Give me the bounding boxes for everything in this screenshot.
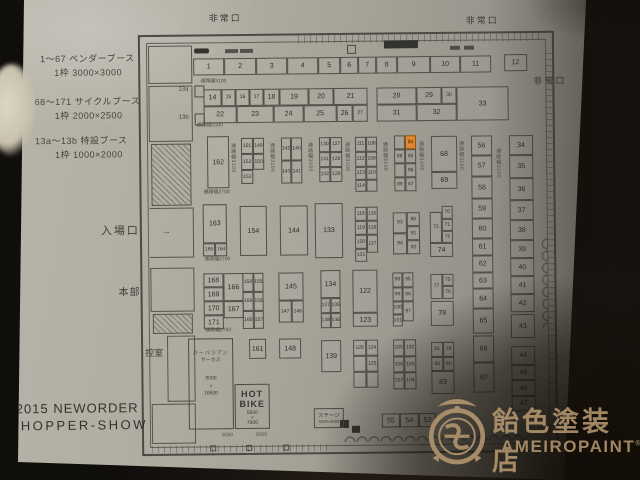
booth-129: 129	[330, 167, 342, 182]
top-wall-mark	[450, 46, 460, 50]
booth-107: 107	[393, 372, 404, 389]
booth-8: 8	[376, 56, 397, 73]
booth-116: 116	[367, 221, 378, 235]
booth-73: 73	[430, 212, 442, 243]
floor-plan: 非常口 非常口 非常口 1〜67 ベンダーブース 1枠 3000×3000 68…	[0, 0, 640, 480]
booth-160: 160	[243, 311, 254, 329]
top-wall-mark	[240, 49, 253, 53]
hot-bike-line1: HOT	[236, 389, 269, 400]
booth-112: 112	[355, 152, 366, 167]
booth-46: 46	[511, 380, 535, 396]
booth-31: 31	[377, 104, 417, 121]
entrance-label: 入場口	[101, 222, 140, 238]
booth-120: 120	[355, 235, 367, 249]
booth-35: 35	[509, 155, 533, 178]
special-booth-13a-label: 13a	[178, 87, 188, 93]
booth-134: 134	[320, 270, 340, 298]
booth-144: 144	[280, 205, 309, 255]
booth-152: 152	[241, 154, 253, 170]
booth-38: 38	[510, 220, 534, 240]
booth-124: 124	[366, 340, 378, 356]
booth-82: 82	[431, 357, 443, 371]
circus-size2: 16500	[190, 390, 233, 398]
aisle-width-label: 通路幅3100	[269, 143, 274, 173]
booth-105: 105	[393, 339, 404, 356]
booth-75: 75	[442, 274, 453, 286]
booth-30: 30	[441, 87, 456, 104]
booth-45: 45	[511, 365, 535, 380]
booth-168: 168	[203, 273, 223, 287]
booth-7: 7	[358, 57, 376, 74]
booth-22: 22	[204, 106, 237, 123]
booth-41: 41	[510, 276, 534, 294]
booth-12: 12	[504, 54, 527, 71]
booth-70: 70	[442, 206, 453, 219]
booth-162: 162	[207, 136, 230, 188]
booth-115: 115	[367, 207, 378, 221]
exit-label-top-right: 非常口	[466, 13, 499, 26]
booth-135: 135	[331, 298, 341, 313]
booth-17: 17	[249, 89, 263, 106]
legend-line-5: 13a〜13b 特設ブース	[35, 133, 128, 147]
booth-122: 122	[352, 270, 377, 313]
aisle-width-label: 通路幅3100	[197, 123, 223, 128]
booth-5: 5	[318, 57, 340, 74]
booth-88: 88	[394, 149, 405, 163]
booth-24: 24	[274, 105, 304, 122]
booth-3: 3	[256, 58, 287, 75]
booth-156: 156	[254, 292, 264, 311]
booth-87: 87	[405, 177, 416, 191]
booth-16: 16	[235, 89, 249, 106]
booth-90: 90	[407, 212, 420, 226]
booth-83: 83	[431, 371, 454, 394]
booth-9: 9	[397, 56, 430, 73]
booth-64: 64	[473, 288, 494, 308]
booth-169: 169	[203, 287, 223, 301]
booth-59: 59	[472, 198, 493, 218]
booth-137: 137	[321, 298, 331, 313]
booth-117: 117	[367, 235, 378, 253]
top-wall-mark	[464, 46, 474, 50]
booth-106: 106	[393, 356, 404, 372]
booth-39: 39	[510, 240, 534, 258]
booth-33: 33	[456, 86, 508, 121]
entrance-arrow: →	[162, 226, 171, 236]
booth-empty	[366, 180, 377, 192]
booth-119: 119	[355, 221, 367, 235]
booth-98: 98	[392, 272, 402, 287]
booth-57: 57	[471, 155, 492, 176]
aisle-width-label: 通路幅3100	[458, 141, 463, 171]
booth-54: 54	[400, 413, 419, 427]
paper-sheet: 非常口 非常口 非常口 1〜67 ベンダーブース 1枠 3000×3000 68…	[0, 0, 640, 480]
booth-85: 85	[405, 149, 416, 163]
aisle-width-label: 通路幅2700	[204, 257, 230, 262]
booth-76: 76	[442, 286, 453, 299]
booth-141: 141	[291, 160, 302, 183]
booth-126: 126	[353, 340, 366, 356]
booth-55: 55	[382, 413, 400, 427]
booth-14: 14	[203, 89, 221, 106]
booth-121: 121	[355, 249, 367, 262]
booth-80: 80	[443, 357, 454, 371]
exit-label-top-left: 非常口	[209, 11, 242, 24]
booth-123: 123	[353, 313, 378, 327]
booth-151: 151	[241, 138, 253, 154]
booth-157: 157	[254, 311, 264, 329]
photo-scene: 非常口 非常口 非常口 1〜67 ベンダーブース 1枠 3000×3000 68…	[0, 0, 640, 480]
booth-78: 78	[431, 301, 454, 326]
booth-84: 84	[405, 135, 416, 149]
bottom-wall-door	[210, 445, 216, 451]
booth-111: 111	[355, 137, 366, 152]
aisle-width-label: 通路幅3100	[418, 141, 423, 171]
booth-72: 72	[442, 231, 453, 243]
event-title-line1: 2015 NEWORDER	[16, 400, 139, 416]
booth-40: 40	[510, 258, 534, 276]
booth-69: 69	[431, 172, 457, 189]
booth-154: 154	[240, 206, 268, 256]
booth-21: 21	[333, 88, 367, 105]
booth-143: 143	[281, 161, 291, 184]
booth-147: 147	[279, 301, 292, 323]
booth-146: 146	[292, 300, 304, 322]
waiting-room-label: 控室	[145, 346, 163, 359]
booth-20: 20	[308, 88, 333, 105]
booth-153: 153	[241, 170, 253, 184]
aisle-width-label: 通路幅3100	[307, 142, 312, 172]
aisle-width-label: 通路幅3100	[200, 79, 226, 84]
booth-125: 125	[366, 356, 378, 372]
booth-34: 34	[509, 135, 533, 155]
stage-label: ステージ	[315, 411, 343, 419]
booth-155: 155	[253, 273, 263, 292]
booth-127: 127	[330, 137, 342, 152]
circus-area: バーバリアン サーカス 9000 × 16500	[188, 338, 234, 429]
booth-140: 140	[291, 137, 302, 160]
booth-29: 29	[416, 87, 441, 104]
top-wall-mark	[225, 49, 238, 53]
wall-room	[148, 46, 192, 84]
booth-19: 19	[279, 88, 308, 105]
booth-71: 71	[442, 219, 453, 231]
booth-164: 164	[215, 243, 227, 256]
aisle-width-label: 通路幅3100	[344, 142, 349, 172]
booth-65: 65	[473, 308, 494, 333]
booth-104: 104	[404, 372, 416, 389]
booth-47: 47	[512, 396, 536, 411]
circus-name-line2: サーカス	[189, 356, 232, 363]
booth-109: 109	[366, 152, 377, 167]
hot-bike-size2: 7000	[236, 421, 269, 426]
booth-28: 28	[376, 87, 416, 104]
booth-4: 4	[287, 57, 318, 74]
booth-101: 101	[393, 314, 403, 326]
booth-91: 91	[407, 226, 420, 240]
booth-25: 25	[304, 105, 337, 122]
hot-bike-line2: BIKE	[236, 399, 269, 410]
booth-138: 138	[321, 313, 331, 328]
legend-line-4: 1枠 2000×2500	[55, 108, 123, 122]
booth-95: 95	[402, 272, 413, 287]
booth-93: 93	[393, 212, 407, 233]
booth-97: 97	[403, 301, 414, 321]
top-wall-black-booth	[384, 40, 418, 48]
stage-box: ステージ 5500×3000	[314, 408, 344, 428]
booth-26: 26	[337, 105, 353, 122]
booth-15: 15	[221, 89, 235, 106]
hq-room	[150, 268, 194, 312]
booth-131: 131	[319, 152, 330, 167]
booth-149: 149	[253, 138, 264, 154]
booth-132: 132	[319, 167, 330, 182]
booth-6: 6	[340, 57, 358, 74]
aisle-width-label: 通路幅3100	[230, 143, 235, 173]
booth-18: 18	[263, 89, 279, 106]
top-wall-door	[347, 45, 356, 54]
booth-53: 53	[419, 413, 436, 427]
hot-bike-area: HOT BIKE 5500 × 7000	[235, 384, 270, 429]
booth-139: 139	[321, 340, 341, 372]
booth-96: 96	[402, 287, 413, 301]
speaker-stack	[352, 426, 360, 433]
booth-81: 81	[431, 342, 443, 357]
bottom-wall-door	[246, 445, 252, 451]
booth-159: 159	[243, 292, 254, 311]
booth-102: 102	[404, 339, 416, 356]
entrance-opening	[150, 208, 195, 258]
stairs	[153, 314, 193, 334]
booth-1: 1	[193, 58, 224, 75]
booth-170: 170	[204, 301, 224, 315]
booth-56: 56	[471, 135, 492, 155]
event-title-line2: CHOPPER-SHOW	[9, 417, 148, 433]
booth-110: 110	[366, 167, 377, 180]
booth-36: 36	[509, 178, 533, 200]
booth-10: 10	[430, 56, 460, 73]
booth-58: 58	[471, 176, 492, 198]
booth-66: 66	[473, 335, 494, 362]
booth-empty	[394, 135, 405, 149]
booth-148: 148	[279, 338, 301, 358]
booth-99: 99	[392, 287, 402, 301]
booth-60: 60	[472, 218, 493, 238]
booth-103: 103	[404, 356, 416, 372]
booth-37: 37	[510, 200, 534, 220]
stage-size: 5500×3000	[316, 419, 341, 424]
booth-42: 42	[511, 294, 535, 312]
aisle-width-label: 通路幅2700	[203, 190, 229, 195]
booth-61: 61	[472, 238, 493, 255]
dimension-label: 8000	[256, 432, 267, 438]
booth-74: 74	[430, 243, 453, 257]
aisle-width-label: 通路幅2700	[205, 328, 231, 333]
legend-line-3: 68〜171 サイクルブース	[34, 94, 140, 108]
legend-line-2: 1枠 3000×3000	[54, 65, 122, 79]
booth-108: 108	[366, 137, 377, 152]
booth-92: 92	[407, 240, 420, 254]
booth-94: 94	[393, 233, 407, 254]
aisle-width-label: 通路幅3100	[495, 148, 500, 178]
crowd-barrier	[344, 429, 540, 442]
crowd-barrier-right	[536, 238, 548, 328]
booth-86: 86	[405, 163, 416, 177]
registered-mark: ®	[635, 440, 640, 447]
booth-empty	[394, 163, 405, 177]
dimension-label: 8000	[222, 432, 233, 438]
booth-27: 27	[353, 105, 368, 122]
booth-166: 166	[223, 273, 243, 301]
booth-empty	[353, 372, 366, 388]
booth-114: 114	[355, 180, 366, 192]
stairs	[151, 144, 192, 206]
booth-89: 89	[394, 177, 405, 191]
booth-2: 2	[224, 58, 256, 75]
booth-32: 32	[417, 104, 457, 121]
booth-150: 150	[253, 154, 264, 170]
legend-line-6: 1枠 1000×2000	[55, 147, 123, 161]
booth-130: 130	[319, 137, 330, 152]
top-wall-mark	[194, 48, 209, 53]
booth-158: 158	[242, 273, 253, 292]
booth-43: 43	[511, 314, 535, 338]
booth-77: 77	[430, 274, 442, 299]
booth-empty	[353, 356, 366, 372]
booth-118: 118	[355, 207, 367, 221]
booth-142: 142	[281, 138, 291, 161]
booth-62: 62	[472, 255, 493, 272]
bottom-wall-door	[283, 445, 289, 451]
booth-67: 67	[473, 362, 494, 392]
booth-145: 145	[278, 272, 303, 300]
booth-63: 63	[472, 272, 493, 288]
booth-136: 136	[331, 313, 341, 328]
booth-167: 167	[224, 301, 244, 318]
booth-23: 23	[237, 106, 274, 123]
booth-133: 133	[315, 203, 344, 258]
special-booth-13b-label: 13b	[179, 115, 189, 121]
booth-161: 161	[249, 339, 266, 359]
booth-79: 79	[443, 342, 454, 357]
booth-128: 128	[330, 152, 342, 167]
booth-100: 100	[393, 301, 403, 314]
booth-113: 113	[355, 167, 366, 180]
booth-empty	[366, 372, 378, 388]
legend-line-1: 1〜67 ベンダーブース	[40, 51, 135, 65]
booth-163: 163	[203, 204, 227, 243]
hq-label: 本部	[118, 283, 140, 298]
booth-44: 44	[511, 346, 535, 365]
booth-68: 68	[431, 136, 457, 172]
booth-165: 165	[203, 243, 215, 256]
booth-11: 11	[460, 55, 491, 72]
aisle-width-label: 通路幅3100	[382, 142, 387, 172]
